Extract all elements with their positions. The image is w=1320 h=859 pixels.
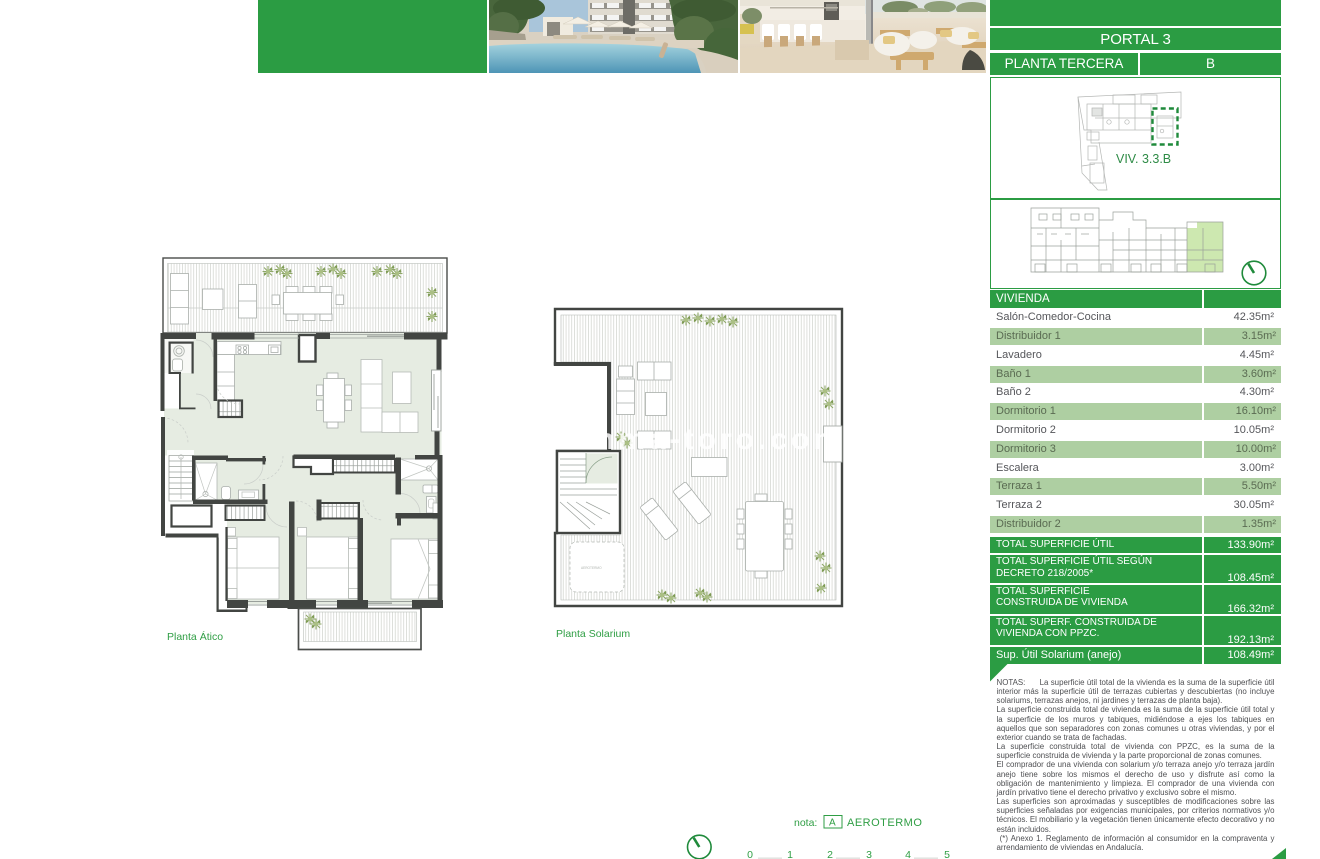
svg-text:AEROTERMO: AEROTERMO (581, 566, 602, 570)
svg-text:nma-toro.com: nma-toro.com (596, 423, 844, 456)
svg-text:Planta Ático: Planta Ático (167, 630, 223, 643)
svg-text:1: 1 (787, 849, 793, 859)
svg-text:AEROTERMO: AEROTERMO (847, 817, 922, 829)
svg-text:A: A (829, 818, 836, 829)
svg-text:4: 4 (905, 849, 911, 859)
svg-text:5: 5 (944, 849, 950, 859)
svg-text:3: 3 (866, 849, 872, 859)
svg-text:0: 0 (747, 849, 753, 859)
svg-text:2: 2 (827, 849, 833, 859)
svg-text:nota:: nota: (794, 817, 817, 829)
svg-text:Planta Solarium: Planta Solarium (556, 628, 630, 640)
